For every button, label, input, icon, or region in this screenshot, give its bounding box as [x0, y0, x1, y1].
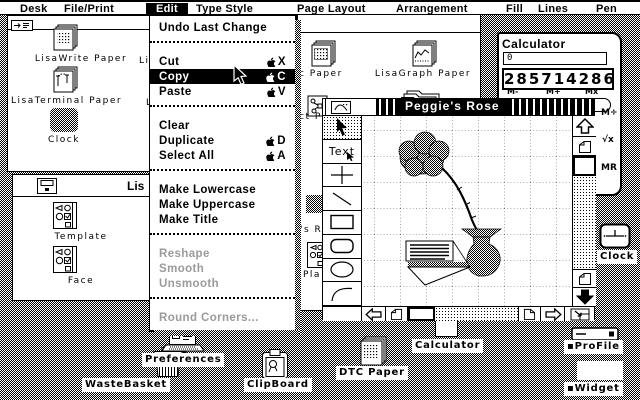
- profile-disk-icon[interactable]: [571, 327, 619, 341]
- edit-menu: Undo Last Change CutX CopyC PasteV Clear…: [149, 15, 297, 332]
- drawing-window[interactable]: Peggie's Rose Text: [322, 98, 595, 320]
- icon-label: c Paper: [299, 69, 343, 79]
- dtc-paper-icon[interactable]: [352, 336, 390, 366]
- apple-icon: [266, 57, 276, 67]
- down-arrow-icon: [576, 289, 594, 305]
- menu-separator: [150, 233, 295, 246]
- calc-button-label[interactable]: M÷: [601, 108, 618, 118]
- page-down-button[interactable]: [573, 270, 596, 288]
- apple-icon: [265, 136, 275, 146]
- desktop-icon-label[interactable]: WasteBasket: [82, 378, 170, 392]
- clipboard-icon[interactable]: [260, 349, 290, 379]
- page-right-icon: [522, 308, 537, 320]
- lisagraph-paper-icon[interactable]: [406, 40, 440, 70]
- widget-icon[interactable]: [577, 361, 623, 380]
- menu-separator: [150, 105, 295, 118]
- menu-lines[interactable]: Lines: [538, 3, 568, 15]
- window-documents[interactable]: LisaWrite Paper Li LisaTerminal Paper L …: [7, 15, 153, 172]
- menu-pen[interactable]: Pen: [596, 3, 617, 15]
- menu-page-layout[interactable]: Page Layout: [297, 3, 366, 15]
- page-up-icon: [577, 140, 593, 153]
- drawing-document-icon: [331, 101, 351, 114]
- rectangle-icon: [328, 213, 356, 231]
- page-left-icon: [389, 308, 404, 320]
- page-right-button[interactable]: [519, 307, 541, 321]
- menu-item-undo-last-change[interactable]: Undo Last Change: [150, 20, 295, 35]
- menu-item-clear[interactable]: Clear: [150, 118, 295, 133]
- menu-item-label: Make Title: [159, 214, 218, 226]
- menu-item-label: Clear: [159, 120, 190, 132]
- apple-icon: [265, 151, 275, 161]
- menu-item-smooth[interactable]: Smooth: [150, 261, 295, 276]
- grayed-document-icon[interactable]: [306, 195, 323, 213]
- apple-icon: [266, 87, 276, 97]
- right-arrow-icon: [544, 308, 562, 321]
- clipped-icon-label: 's R: [300, 225, 322, 235]
- page-left-button[interactable]: [386, 307, 408, 321]
- resize-handle[interactable]: [565, 307, 594, 321]
- tool-rectangle[interactable]: [323, 211, 362, 235]
- clipped-icon-label: ct P: [299, 112, 322, 122]
- menu-item-make-uppercase[interactable]: Make Uppercase: [150, 197, 295, 212]
- apple-icon: [265, 72, 275, 82]
- lisa-desktop: LisaWrite Paper Li LisaTerminal Paper L …: [0, 0, 640, 400]
- menu-item-reshape[interactable]: Reshape: [150, 246, 295, 261]
- icon-label: Clock: [34, 135, 94, 145]
- drawing-canvas[interactable]: [362, 116, 572, 306]
- icon-label: Template: [23, 232, 139, 242]
- menu-type-style[interactable]: Type Style: [196, 3, 253, 15]
- menu-item-label: Unsmooth: [159, 278, 219, 290]
- crosshair-icon: [329, 165, 355, 185]
- line-icon: [329, 190, 355, 208]
- mouse-cursor-icon: [233, 64, 249, 86]
- calc-button-label[interactable]: MR: [601, 163, 617, 173]
- window-title: Lis: [127, 179, 144, 193]
- desktop-icon-label[interactable]: ▪Widget: [564, 382, 623, 396]
- horizontal-scroll-thumb[interactable]: [408, 307, 435, 321]
- menu-shortcut: A: [265, 150, 286, 162]
- horizontal-scrollbar[interactable]: [323, 306, 594, 321]
- face-icon[interactable]: [51, 246, 79, 273]
- vertical-scroll-thumb[interactable]: [573, 156, 596, 176]
- desktop-icon-label[interactable]: Calculator: [412, 339, 483, 353]
- menu-item-duplicate[interactable]: DuplicateD: [150, 133, 295, 148]
- calc-button-label[interactable]: M+: [546, 87, 561, 96]
- menu-shortcut: C: [265, 71, 286, 83]
- scroll-left-button[interactable]: [362, 307, 386, 321]
- tool-arc[interactable]: [323, 282, 362, 306]
- menu-separator: [150, 169, 295, 182]
- menu-item-label: Reshape: [159, 248, 210, 260]
- calc-button-label[interactable]: M-: [507, 87, 518, 96]
- icon-label: LisaWrite Paper: [16, 54, 146, 64]
- left-arrow-icon: [365, 308, 383, 321]
- menu-item-label: Round Corners...: [159, 312, 259, 324]
- rose-drawing: [362, 116, 572, 306]
- desktop-icon-label[interactable]: DTC Paper: [336, 366, 408, 380]
- desktop-icon-label[interactable]: ClipBoard: [244, 378, 312, 392]
- clipped-icon-label: Li: [139, 56, 150, 66]
- calculator-memory-display: 0: [503, 52, 607, 65]
- menu-shortcut: V: [266, 86, 286, 98]
- desktop-icon-label[interactable]: Preferences: [142, 353, 224, 367]
- calculator-title: Calculator: [502, 37, 566, 51]
- menu-shortcut: X: [266, 56, 286, 68]
- disk-icon: [37, 178, 57, 194]
- menu-file-print[interactable]: File/Print: [64, 3, 114, 15]
- window-stationery-titlebar[interactable]: Lis: [13, 175, 151, 197]
- menu-item-label: Paste: [159, 86, 192, 98]
- desktop-icon-label[interactable]: ▪ProFile: [564, 340, 623, 354]
- tool-palette: Text: [323, 116, 362, 306]
- desktop-icon-label[interactable]: Clock: [597, 250, 637, 264]
- tool-text[interactable]: Text: [323, 140, 362, 164]
- page-up-button[interactable]: [573, 137, 596, 156]
- menu-item-label: Undo Last Change: [159, 22, 267, 34]
- vertical-scrollbar[interactable]: [572, 116, 596, 306]
- menu-separator: [150, 41, 295, 54]
- menu-desk[interactable]: Desk: [20, 3, 48, 15]
- scroll-up-button[interactable]: [573, 116, 596, 137]
- scroll-down-button[interactable]: [573, 288, 596, 306]
- menu-separator: [150, 297, 295, 310]
- calc-button-label[interactable]: Mx: [585, 87, 598, 96]
- horizontal-scroll-track[interactable]: [435, 307, 519, 321]
- drawing-window-title: Peggie's Rose: [395, 99, 510, 115]
- drawing-document-icon-box[interactable]: [326, 99, 376, 115]
- menu-item-label: Cut: [159, 56, 179, 68]
- template-icon[interactable]: [51, 202, 79, 229]
- menu-arrangement[interactable]: Arrangement: [396, 3, 468, 15]
- icon-label: Face: [23, 276, 139, 286]
- drawing-window-titlebar[interactable]: Peggie's Rose: [323, 99, 594, 116]
- menu-item-round-corners[interactable]: Round Corners...: [150, 310, 295, 325]
- menu-item-copy[interactable]: CopyC: [150, 69, 295, 84]
- menu-fill[interactable]: Fill: [506, 3, 523, 15]
- menu-item-label: Smooth: [159, 263, 204, 275]
- menu-item-make-title[interactable]: Make Title: [150, 212, 295, 227]
- icon-label: LisaTerminal Paper: [11, 96, 122, 106]
- menu-item-paste[interactable]: PasteV: [150, 84, 295, 99]
- tool-crosshair[interactable]: [323, 164, 362, 188]
- window-background-titlebar[interactable]: [298, 15, 480, 33]
- arc-icon: [329, 285, 355, 303]
- menu-edit[interactable]: Edit: [146, 3, 188, 15]
- clock-desktop-icon[interactable]: [599, 223, 631, 249]
- icon-label: LisaGraph Paper: [370, 69, 476, 79]
- menu-item-unsmooth[interactable]: Unsmooth: [150, 276, 295, 291]
- menu-item-make-lowercase[interactable]: Make Lowercase: [150, 182, 295, 197]
- small-cursor-icon: [347, 152, 355, 161]
- pointer-icon: [333, 117, 351, 137]
- lisaterminal-paper-icon[interactable]: [47, 66, 81, 96]
- tool-pointer[interactable]: [323, 116, 362, 140]
- vertical-scroll-track[interactable]: [573, 176, 596, 270]
- tab-icon: [11, 20, 33, 31]
- clock-document-icon[interactable]: [50, 108, 78, 132]
- scrollbar-corner: [323, 307, 362, 321]
- page-down-icon: [577, 272, 593, 285]
- lisawrite-paper-icon[interactable]: [47, 24, 81, 54]
- scroll-right-button[interactable]: [541, 307, 565, 321]
- menu-item-label: Copy: [159, 71, 189, 83]
- menu-bar: Desk File/Print Edit Type Style Page Lay…: [0, 0, 640, 15]
- menu-item-cut[interactable]: CutX: [150, 54, 295, 69]
- tool-line[interactable]: [323, 187, 362, 211]
- calc-button-label[interactable]: √x: [602, 135, 614, 145]
- tool-ellipse[interactable]: [323, 259, 362, 283]
- tool-rounded-rectangle[interactable]: [323, 235, 362, 259]
- menu-item-label: Make Lowercase: [159, 184, 256, 196]
- ellipse-icon: [328, 260, 356, 279]
- up-arrow-icon: [576, 118, 594, 134]
- menu-shortcut: D: [265, 135, 286, 147]
- rounded-rectangle-icon: [328, 237, 356, 255]
- resize-icon: [570, 308, 590, 321]
- menu-item-select-all[interactable]: Select AllA: [150, 148, 295, 163]
- menu-item-label: Select All: [159, 150, 214, 162]
- menu-item-label: Make Uppercase: [159, 199, 255, 211]
- window-stationery[interactable]: Lis Template Face: [12, 174, 152, 301]
- paper-stack-icon[interactable]: [305, 40, 339, 70]
- menu-item-label: Duplicate: [159, 135, 214, 147]
- clipped-icon-label: Pla: [303, 270, 321, 280]
